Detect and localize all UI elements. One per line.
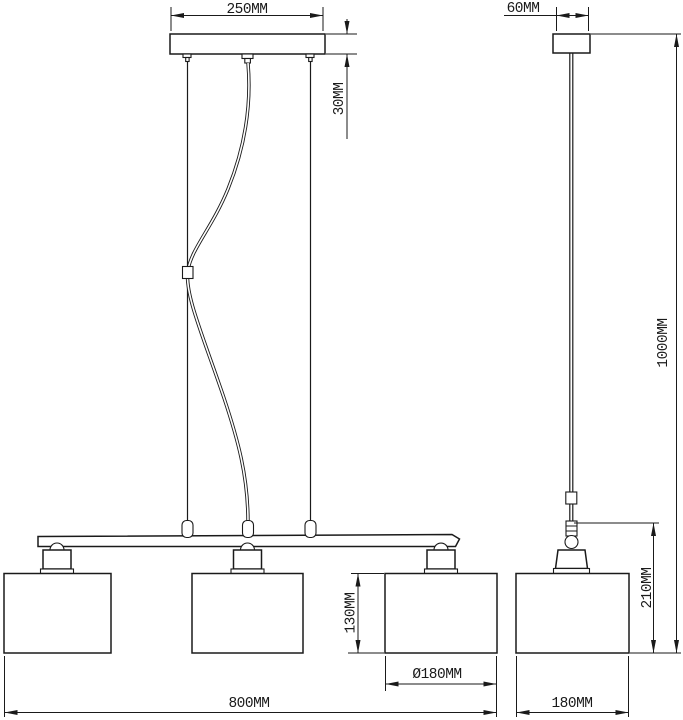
lamp-shade-1 [4, 574, 111, 654]
cable-clip [183, 267, 194, 279]
lamp-shade-2 [192, 574, 303, 654]
dim-canopy-height-label: 30MM [332, 83, 348, 116]
dim-shade-diameter-label: Ø180MM [412, 667, 461, 683]
bar-connector-right [305, 521, 316, 538]
bar-connector-left [182, 521, 193, 538]
canopy-fitting-right [306, 54, 314, 62]
dim-total-width-label: 800MM [228, 696, 269, 712]
dim-lamp-height-label: 210MM [640, 567, 656, 608]
dim-canopy-depth-label: 60MM [507, 1, 540, 17]
dim-drop-height: 1000MM [591, 34, 681, 653]
dim-canopy-height: 30MM [326, 19, 357, 139]
dim-shade-height: 130MM [344, 574, 385, 654]
bar-connector-center [243, 521, 254, 538]
dim-shade-depth-label: 180MM [551, 696, 592, 712]
dim-canopy-depth: 60MM [504, 1, 589, 31]
socket-cup [556, 550, 588, 569]
lamp-shade-side [516, 574, 629, 654]
lamp-shade-3 [385, 574, 497, 654]
canopy-side [553, 34, 590, 53]
front-view: 250MM 30MM 130MM Ø180MM 800M [4, 2, 497, 717]
canopy-front [170, 34, 325, 54]
pendant-lamp-dimension-diagram: 250MM 30MM 130MM Ø180MM 800M [0, 0, 683, 720]
socket-3 [427, 550, 455, 569]
power-cable [187, 63, 248, 522]
lamp-side [516, 521, 629, 653]
dim-shade-depth: 180MM [517, 656, 629, 717]
socket-ball-joint [565, 536, 578, 549]
technical-drawing: 250MM 30MM 130MM Ø180MM 800M [0, 0, 683, 720]
side-view: 60MM 1000MM 210MM 180MM [504, 1, 681, 717]
socket-2 [234, 550, 262, 569]
dim-canopy-width: 250MM [171, 2, 323, 31]
dim-shade-diameter: Ø180MM [386, 656, 497, 717]
canopy-fitting-left [183, 54, 191, 62]
rod-coupler [566, 492, 577, 504]
dim-shade-height-label: 130MM [344, 592, 360, 633]
lamp-3 [385, 543, 497, 653]
lamp-2 [192, 543, 303, 653]
dim-total-width: 800MM [5, 656, 497, 717]
suspension-rod [570, 53, 573, 524]
lamp-1 [4, 543, 111, 653]
dim-canopy-width-label: 250MM [226, 2, 267, 18]
socket-1 [43, 550, 71, 569]
canopy-fitting-center [242, 54, 253, 63]
dim-drop-height-label: 1000MM [656, 318, 672, 367]
